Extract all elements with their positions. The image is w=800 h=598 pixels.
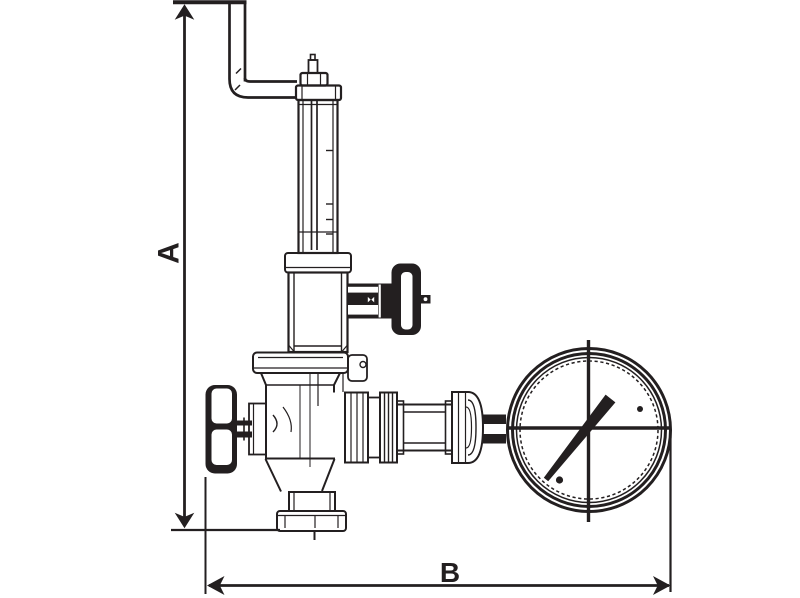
svg-text:B: B <box>440 557 460 588</box>
svg-text:A: A <box>153 242 186 264</box>
